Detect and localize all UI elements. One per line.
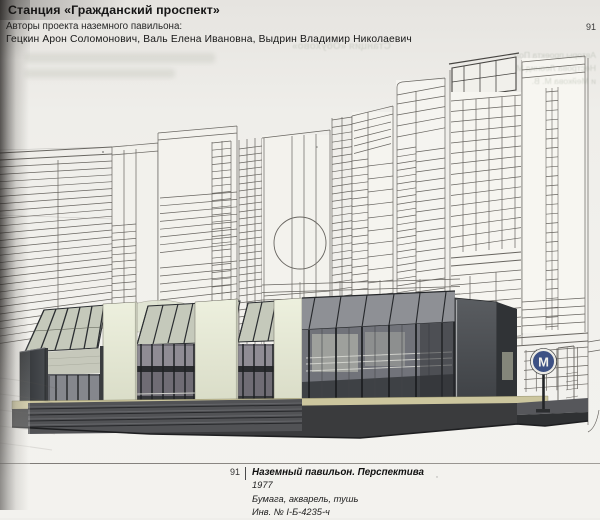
end-wall — [455, 298, 497, 407]
figure-number: 91 — [218, 466, 240, 477]
caption-medium: Бумага, акварель, тушь — [252, 493, 424, 506]
glazed-bay — [137, 344, 195, 405]
side-door — [502, 352, 513, 380]
pavilion-pier — [195, 299, 238, 405]
page-number: 91 — [578, 22, 596, 32]
authors-label: Авторы проекта наземного павильона: — [6, 21, 182, 32]
authors-names: Гецкин Арон Соломонович, Валь Елена Иван… — [6, 34, 412, 45]
pavilion-pier — [103, 302, 137, 407]
entrance-steps — [28, 399, 302, 434]
caption-separator — [245, 467, 246, 480]
bleedthrough-text: и Мейкова М. В. — [500, 76, 596, 86]
bleedthrough-smudge — [25, 53, 215, 63]
glass-hall — [302, 291, 455, 408]
bleedthrough-smudge — [25, 69, 175, 78]
entrance — [45, 346, 104, 406]
caption-year: 1977 — [252, 479, 424, 492]
metro-sign-letter: М — [538, 355, 549, 370]
bleedthrough-text: Нестрова Леонид М — [500, 63, 596, 73]
glazed-bay — [238, 344, 274, 405]
sign-pole — [542, 372, 545, 411]
bleedthrough-text: Авторы проекта Пол — [500, 50, 596, 60]
figure-caption: 91 Наземный павильон. Перспектива 1977 Б… — [218, 466, 424, 520]
caption-title: Наземный павильон. Перспектива — [252, 466, 424, 479]
caption-rule — [0, 463, 600, 464]
page-title: Станция «Гражданский проспект» — [8, 3, 220, 17]
scanned-book-page: М Станция «Гражданский проспект» Авторы … — [0, 0, 600, 518]
pavilion-pier — [274, 298, 302, 405]
